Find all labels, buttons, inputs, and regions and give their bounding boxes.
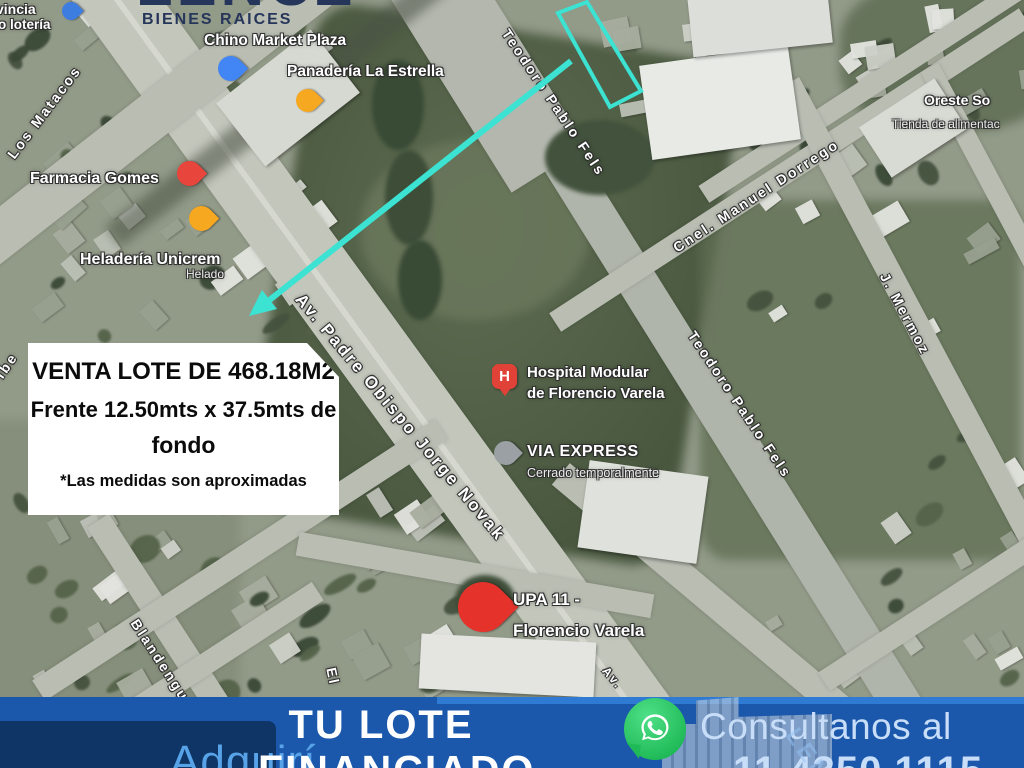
poi-label: vincia: [0, 1, 36, 17]
poi-sublabel: Cerrado temporalmente: [527, 466, 659, 480]
market-pin-icon: [218, 56, 243, 81]
contact-banner: Adquirí TU LOTE FINANCIADO Consultanos a…: [0, 697, 1024, 768]
lot-note: *Las medidas son aproximadas: [28, 472, 339, 491]
bakery-pin-icon: [296, 89, 319, 112]
hospital-pin-icon: H: [492, 364, 517, 389]
poi-label: Panadería La Estrella: [287, 63, 444, 81]
lottery-pin-icon: [62, 2, 80, 20]
banner-headline-2: FINANCIADO: [258, 747, 504, 768]
lot-title: VENTA LOTE DE 468.18M2: [28, 358, 339, 386]
whatsapp-icon: [624, 698, 686, 760]
poi-sublabel: Helado: [186, 267, 224, 281]
upa-pin-icon: [458, 582, 508, 632]
poi-label: Florencio Varela: [513, 621, 644, 641]
poi-label: Farmacia Gomes: [30, 170, 159, 188]
banner-phone-number: 11 4350 1115: [733, 749, 983, 768]
lot-dimensions-cont: fondo: [28, 432, 339, 459]
poi-label: o lotería: [0, 17, 51, 32]
real-estate-flyer: LENCZ BIENES RAICES Los Matacos Teodoro …: [0, 0, 1024, 768]
business-pin-icon: [494, 441, 518, 465]
poi-label: Chino Market Plaza: [204, 32, 346, 50]
lot-dimensions: Frente 12.50mts x 37.5mts de: [28, 397, 339, 423]
banner-headline-1: TU LOTE: [281, 703, 481, 748]
pharmacy-pin-icon: [177, 161, 202, 186]
street-label: El: [323, 666, 342, 687]
poi-label: Oreste So: [924, 92, 990, 108]
poi-sublabel: Tienda de alimentac: [892, 117, 1000, 131]
brand-tagline: BIENES RAICES: [142, 11, 292, 29]
poi-label: UPA 11 -: [513, 590, 580, 610]
lot-info-box: VENTA LOTE DE 468.18M2 Frente 12.50mts x…: [28, 343, 339, 515]
poi-label: Hospital Modular: [527, 364, 649, 381]
icecream-pin-icon: [189, 206, 214, 231]
banner-contact-label: Consultanos al: [700, 706, 952, 748]
poi-label: de Florencio Varela: [527, 385, 665, 402]
poi-label: VIA EXPRESS: [527, 443, 639, 461]
